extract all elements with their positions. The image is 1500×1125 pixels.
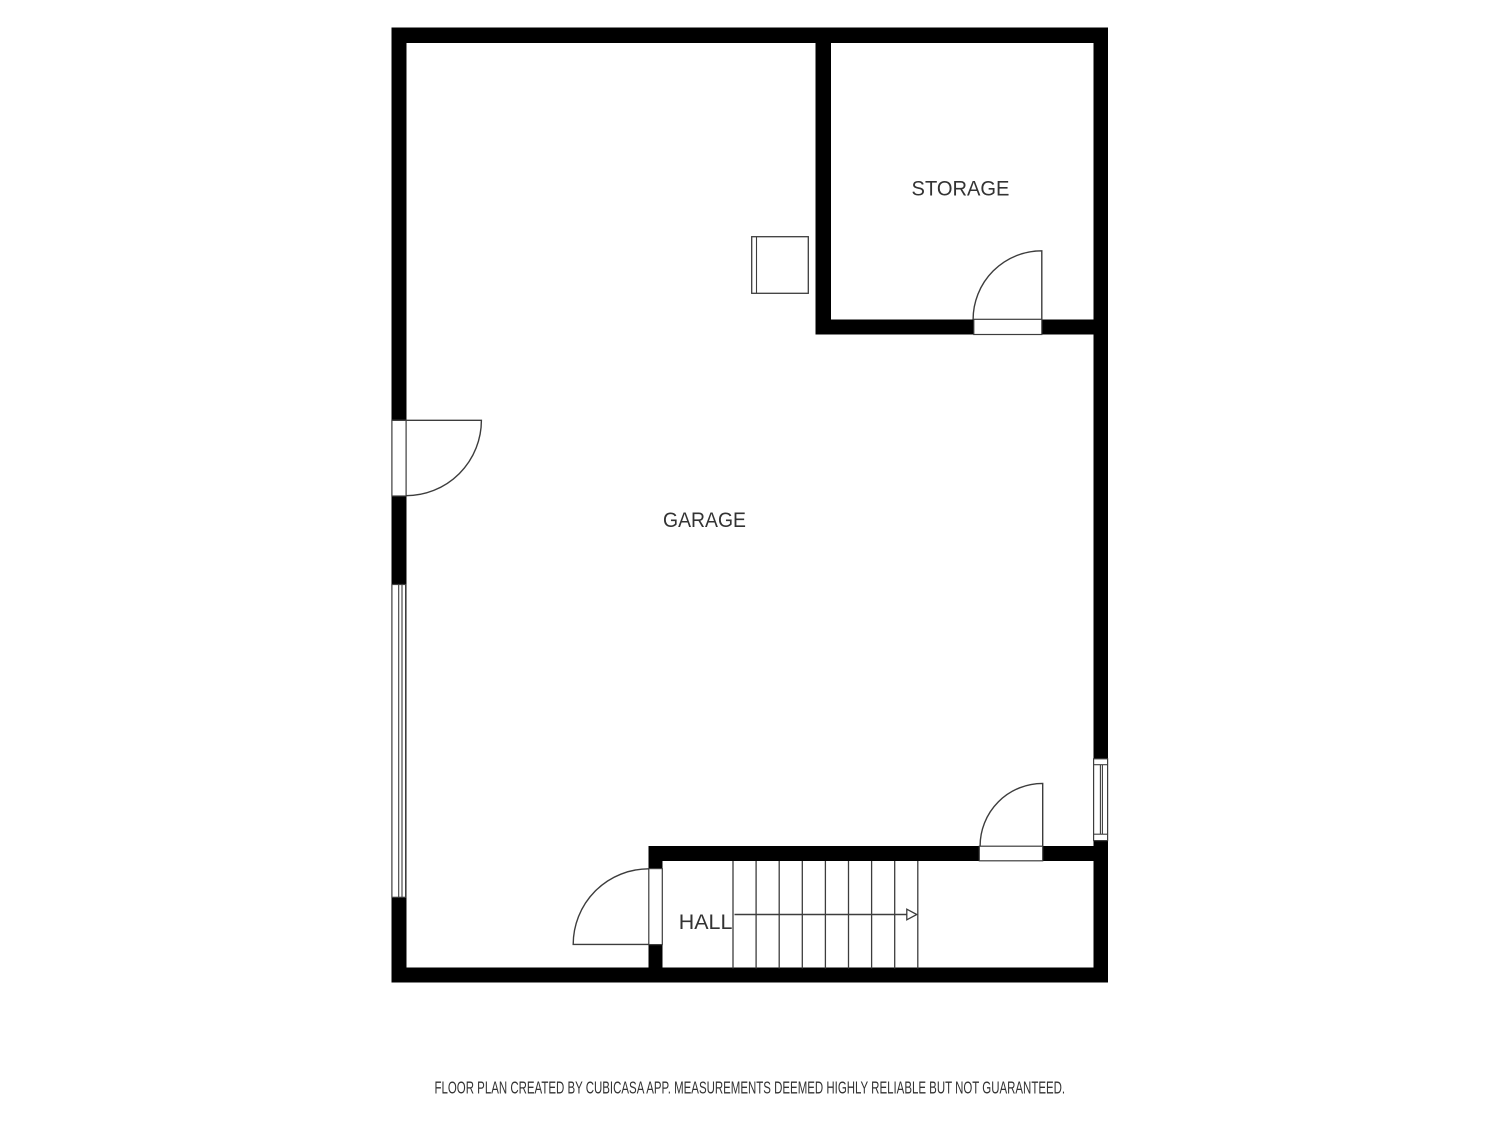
svg-text:HALL: HALL bbox=[679, 910, 733, 934]
svg-text:GARAGE: GARAGE bbox=[663, 508, 746, 532]
svg-text:STORAGE: STORAGE bbox=[912, 176, 1010, 200]
svg-text:FLOOR PLAN CREATED BY CUBICASA: FLOOR PLAN CREATED BY CUBICASA APP. MEAS… bbox=[435, 1078, 1066, 1098]
